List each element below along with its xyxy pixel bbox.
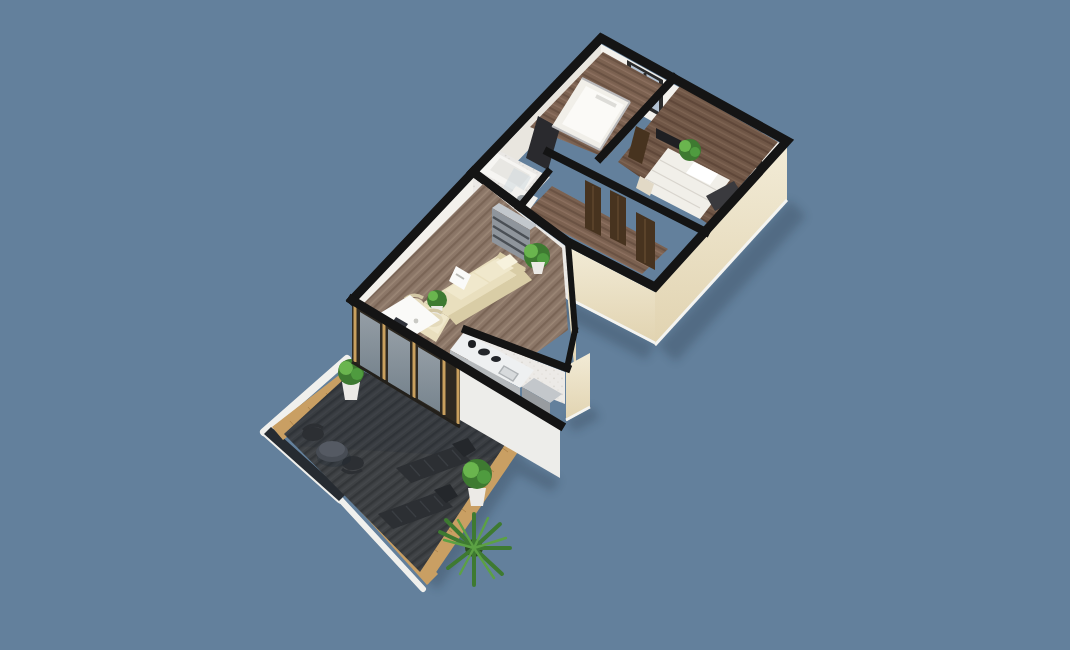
interior-door	[610, 190, 626, 246]
cooktop-burner	[491, 356, 501, 362]
bedroom-plant	[679, 139, 701, 161]
bistro-table-top	[319, 441, 345, 457]
entrance-door	[636, 212, 655, 270]
cooktop-burner	[478, 348, 490, 355]
floorplan-render	[0, 0, 1070, 650]
kettle	[468, 340, 476, 348]
interior-door	[585, 180, 601, 236]
